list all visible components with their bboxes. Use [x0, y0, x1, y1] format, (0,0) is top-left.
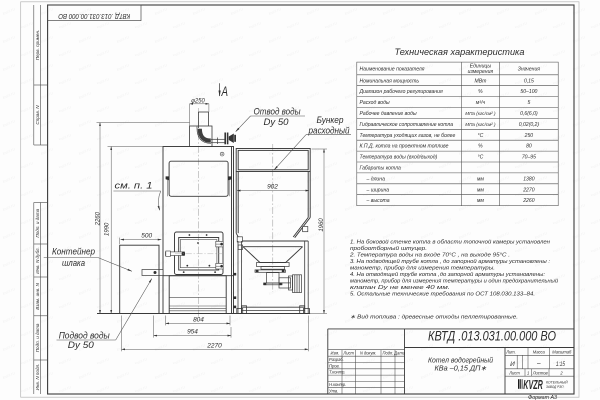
svg-text:Лист: Лист [508, 371, 520, 376]
svg-text:Лит.: Лит. [505, 349, 516, 354]
svg-text:∗ Вид топлива : древесные отх: ∗ Вид топлива : древесные отходы пеллети… [350, 315, 518, 321]
svg-text:мм: мм [477, 176, 484, 182]
svg-text:Инв. N подл.: Инв. N подл. [35, 364, 40, 391]
svg-text:Dу 50: Dу 50 [68, 340, 94, 350]
svg-text:манометр, прибор для измерения: манометр, прибор для измерения температу… [350, 278, 559, 285]
svg-text:Утв.: Утв. [329, 389, 338, 394]
svg-text:Габариты котла: Габариты котла [360, 166, 401, 172]
svg-text:Дата: Дата [393, 351, 406, 356]
svg-text:KVZR: KVZR [523, 378, 543, 392]
svg-text:1960: 1960 [319, 218, 325, 232]
svg-text:2270: 2270 [206, 342, 222, 349]
svg-text:954: 954 [187, 329, 198, 336]
svg-text:902: 902 [267, 184, 278, 191]
svg-text:Рабочее давление воды: Рабочее давление воды [360, 111, 417, 117]
svg-text:Диапазон рабочего регулировани: Диапазон рабочего регулирования [359, 89, 443, 95]
svg-text:1990: 1990 [105, 222, 111, 236]
svg-text:МПа (кгс/см² ): МПа (кгс/см² ) [465, 122, 496, 127]
svg-text:3. На подводящей трубе котла: 3. На подводящей трубе котла , до запорн… [350, 258, 550, 265]
svg-text:Подп. и дата: Подп. и дата [35, 323, 40, 352]
svg-text:Контейнер: Контейнер [52, 247, 95, 257]
svg-text:2260: 2260 [95, 211, 101, 226]
svg-text:расходный: расходный [308, 126, 350, 136]
svg-text:Наименование показателя: Наименование показателя [360, 67, 425, 73]
svg-text:5: 5 [527, 100, 530, 106]
svg-text:К.П.Д. котла на проектном топл: К.П.Д. котла на проектном топливе [360, 144, 449, 150]
svg-text:Справ. N: Справ. N [35, 105, 40, 125]
svg-text:Пров.: Пров. [329, 363, 340, 368]
svg-text:Разраб.: Разраб. [329, 357, 344, 362]
svg-text:Н.контр.: Н.контр. [329, 382, 346, 387]
svg-text:Температура уходящих газов, не: Температура уходящих газов, не более [360, 133, 456, 139]
svg-text:°С: °С [478, 133, 484, 139]
svg-text:Изм.: Изм. [331, 351, 340, 356]
svg-text:%: % [478, 144, 483, 150]
svg-text:Техническая характеристика: Техническая характеристика [395, 47, 525, 57]
svg-text:Dу 50: Dу 50 [264, 117, 289, 127]
svg-text:Расход воды: Расход воды [360, 100, 390, 106]
svg-text:250: 250 [524, 133, 534, 139]
svg-text:мм: мм [477, 198, 484, 204]
svg-text:ЗАВОД РЭП: ЗАВОД РЭП [546, 384, 564, 389]
svg-text:манометр, прибор для измерения: манометр, прибор для измерения температу… [350, 266, 495, 272]
svg-text:2. Температура воды на входе: 2. Температура воды на входе 70°С , на в… [349, 253, 510, 259]
svg-text:%: % [478, 89, 483, 95]
svg-text:измерения: измерения [468, 69, 494, 75]
svg-text:Т.контр.: Т.контр. [329, 370, 346, 375]
svg-text:КВТД .013.031.00.000 ВО: КВТД .013.031.00.000 ВО [428, 328, 556, 343]
svg-text:клапан Dу не менее 40 мм.: клапан Dу не менее 40 мм. [350, 285, 450, 291]
svg-text:И: И [510, 361, 515, 368]
svg-text:Подп.: Подп. [383, 351, 394, 356]
svg-text:N докум.: N докум. [360, 351, 377, 356]
svg-text:Масштаб: Масштаб [552, 349, 572, 354]
svg-text:Листов: Листов [532, 371, 549, 376]
svg-text:Бункер: Бункер [317, 115, 344, 125]
svg-text:КВа –0,15 ДП∗: КВа –0,15 ДП∗ [435, 364, 487, 373]
svg-text:φ250: φ250 [191, 97, 205, 104]
svg-text:м³/ч: м³/ч [476, 100, 486, 106]
svg-text:500: 500 [141, 232, 152, 239]
svg-text:Перв. примен.: Перв. примен. [35, 30, 40, 61]
svg-text:Лист: Лист [342, 351, 354, 356]
svg-text:КВТД .013.031.00.000 ВО: КВТД .013.031.00.000 ВО [58, 12, 130, 21]
svg-text:шлака: шлака [62, 258, 85, 268]
svg-text:Формат А3: Формат А3 [528, 395, 557, 400]
svg-text:2260: 2260 [522, 198, 534, 204]
svg-text:Температура воды (вход/выход): Температура воды (вход/выход) [360, 155, 438, 161]
svg-text:Подп. и дата: Подп. и дата [35, 208, 40, 237]
svg-text:1380: 1380 [523, 176, 534, 182]
svg-text:см. п. 1: см. п. 1 [115, 181, 153, 192]
svg-text:1. На боковой стенке котла в: 1. На боковой стенке котла в области топ… [350, 239, 551, 246]
svg-text:пробоотборный штуцер.: пробоотборный штуцер. [350, 245, 427, 252]
svg-text:Взам. инв. N: Взам. инв. N [35, 282, 40, 309]
svg-text:Гидравлическое сопротивление к: Гидравлическое сопротивление котла [360, 122, 454, 128]
svg-text:1:15: 1:15 [556, 361, 565, 368]
svg-text:0,15: 0,15 [524, 78, 534, 84]
svg-text:80: 80 [526, 144, 532, 150]
svg-text:Масса: Масса [533, 349, 546, 354]
svg-text:– длина: – длина [366, 176, 386, 182]
svg-text:Подвод воды: Подвод воды [59, 331, 110, 341]
svg-text:50–100: 50–100 [520, 89, 537, 95]
svg-text:70–95: 70–95 [522, 155, 536, 161]
svg-text:Значения: Значения [518, 67, 541, 73]
svg-text:0,02(0,2): 0,02(0,2) [519, 122, 540, 128]
svg-text:0,6(6,0): 0,6(6,0) [520, 111, 538, 117]
svg-text:804: 804 [193, 316, 204, 323]
svg-text:°С: °С [478, 155, 484, 161]
svg-text:МВт: МВт [474, 78, 486, 84]
svg-text:2270: 2270 [522, 187, 534, 193]
svg-text:4. На отводящей трубе котла ,: 4. На отводящей трубе котла ,до запорной… [350, 271, 545, 278]
svg-text:мм: мм [477, 187, 484, 193]
svg-text:МПа (кгс/см² ): МПа (кгс/см² ) [465, 111, 496, 116]
svg-text:5. Остальные технические треб: 5. Остальные технические требования по О… [350, 292, 535, 298]
svg-text:А: А [221, 84, 228, 99]
svg-text:Отвод воды: Отвод воды [254, 107, 301, 117]
svg-text:Инв. N дубл.: Инв. N дубл. [35, 247, 40, 274]
svg-text:– высота: – высота [366, 198, 390, 204]
svg-text:– ширина: – ширина [366, 187, 390, 193]
svg-text:1: 1 [527, 371, 529, 376]
svg-text:Номинальная мощность: Номинальная мощность [360, 78, 420, 84]
svg-text:–: – [536, 360, 541, 367]
